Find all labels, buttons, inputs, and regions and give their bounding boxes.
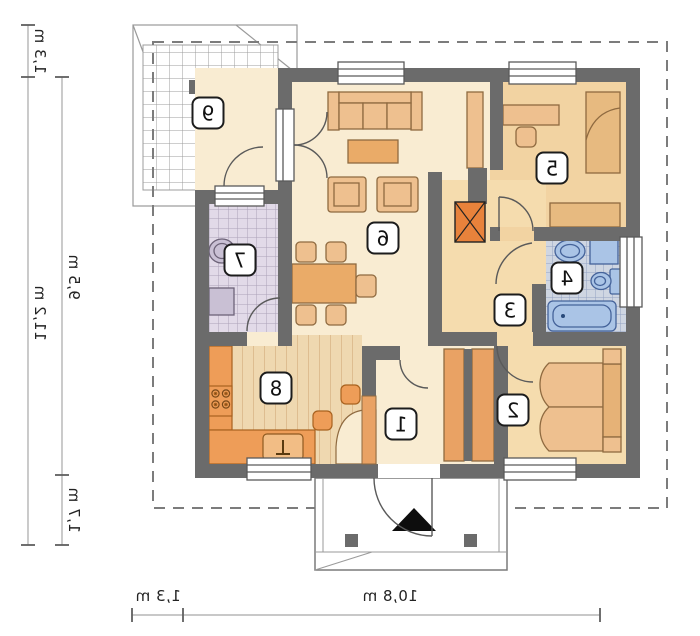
- dimension-left-top: 1,3 m: [31, 28, 49, 74]
- floor-plan: 1 2 3 4 5 6 7 8 9 1,3 m 11,2 m 9,5 m 1,7…: [0, 0, 700, 636]
- fireplace: [455, 202, 485, 242]
- dimension-bottom-left: 1,3 m: [135, 587, 181, 605]
- bed-double: [540, 363, 603, 407]
- window-bedroom5-top: [509, 62, 576, 84]
- room-label-8: 8: [260, 372, 293, 405]
- bedroom2-furniture: [540, 349, 621, 452]
- desk: [503, 105, 559, 125]
- room-label-9: 9: [192, 97, 225, 130]
- terrace-door: [215, 186, 264, 206]
- hall-cabinet: [362, 396, 376, 464]
- dimension-left-lower: 1,7 m: [65, 487, 83, 533]
- dresser: [550, 203, 620, 227]
- cabinet: [467, 92, 483, 168]
- dimension-bottom-total: 10,8 m: [362, 587, 418, 605]
- room-label-5: 5: [536, 152, 569, 185]
- window-bathroom-right: [620, 237, 642, 307]
- room-label-7: 7: [224, 244, 257, 277]
- stove: [209, 386, 232, 416]
- window-kitchen-bottom: [247, 458, 311, 480]
- porch-post: [345, 534, 358, 547]
- room-label-1: 1: [385, 408, 418, 441]
- dimension-left-main: 9,5 m: [65, 254, 83, 300]
- nightstand: [603, 349, 621, 364]
- armchair: [377, 177, 418, 212]
- bathtub: [548, 301, 616, 331]
- sofa: [328, 92, 422, 130]
- room-label-2: 2: [497, 394, 530, 427]
- armchair: [328, 177, 366, 212]
- room-label-3: 3: [494, 294, 527, 327]
- dining-table: [292, 264, 356, 303]
- french-door: [276, 109, 294, 181]
- desk-chair: [516, 127, 536, 147]
- washbasin: [555, 240, 585, 262]
- dimension-left-total: 11,2 m: [31, 285, 49, 341]
- room-label-6: 6: [367, 222, 400, 255]
- window-bedroom2-bottom: [504, 458, 576, 480]
- kitchen-sink: [263, 434, 303, 460]
- floor-plan-drawing: [0, 0, 700, 636]
- bed-single: [586, 92, 620, 173]
- porch-post: [464, 534, 477, 547]
- room-label-4: 4: [551, 262, 584, 295]
- bar-stool: [313, 411, 332, 430]
- shower: [590, 239, 618, 264]
- floor-corridor: [428, 180, 546, 346]
- window-living-top: [338, 62, 404, 84]
- washing-machine: [209, 288, 234, 315]
- bed-double: [540, 407, 603, 451]
- headboard: [603, 364, 621, 437]
- bar-stool: [341, 385, 360, 404]
- nightstand: [603, 437, 621, 452]
- coffee-table: [348, 140, 398, 163]
- wardrobe: [472, 349, 494, 461]
- wardrobe: [444, 349, 464, 461]
- porch: [315, 478, 507, 570]
